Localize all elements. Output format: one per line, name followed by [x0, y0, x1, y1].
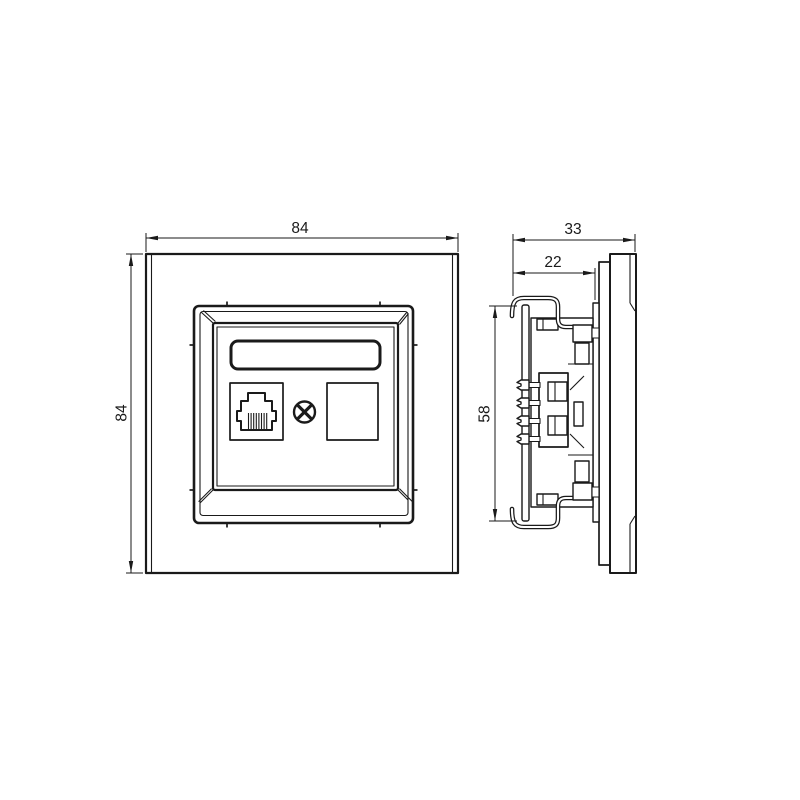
- dim-front-height: 84: [114, 254, 144, 573]
- terminal-screw-top: [548, 382, 567, 401]
- arrowhead: [493, 306, 497, 318]
- dim-label: 22: [544, 254, 561, 271]
- side-latch-block-top: [573, 325, 592, 342]
- side-center-slot: [574, 402, 583, 426]
- arrowhead: [146, 236, 158, 240]
- dim-label: 84: [114, 404, 131, 422]
- arrowhead: [513, 271, 525, 275]
- side-terminal-block: [539, 373, 568, 447]
- cover-inner-face-line: [217, 327, 394, 486]
- dim-label: 33: [564, 221, 581, 238]
- dim-insert-height: 58: [477, 306, 518, 521]
- rj45-port: [230, 383, 283, 440]
- side-rail-bottom: [575, 461, 589, 482]
- side-latch-nub-top: [592, 328, 599, 338]
- side-view: [512, 254, 636, 573]
- screw-icon: [294, 402, 315, 423]
- blank-port: [327, 383, 378, 440]
- arrowhead: [446, 236, 458, 240]
- arrowhead: [129, 254, 133, 266]
- rj45-pins: [249, 413, 267, 429]
- drawing-svg: 84 84 58 33 22: [0, 0, 800, 800]
- dim-label: 84: [291, 220, 309, 237]
- side-cover-slab: [599, 262, 610, 565]
- side-frame-edge-profile: [630, 254, 635, 573]
- terminal-screw-bottom: [548, 416, 567, 435]
- arrowhead: [583, 271, 595, 275]
- front-view: [146, 254, 458, 573]
- dim-insert-depth: 22: [513, 254, 595, 300]
- arrowhead: [623, 238, 635, 242]
- technical-drawing: 84 84 58 33 22: [0, 0, 800, 800]
- arrowhead: [129, 561, 133, 573]
- dim-depth-total: 33: [513, 221, 635, 296]
- side-frame-slab: [610, 254, 636, 573]
- arrowhead: [493, 509, 497, 521]
- dim-label: 58: [477, 405, 494, 422]
- arrowhead: [513, 238, 525, 242]
- side-rail-top: [575, 343, 589, 364]
- side-latch-nub-bottom: [592, 487, 599, 497]
- side-latch-block-bottom: [573, 483, 592, 500]
- label-window: [231, 341, 380, 369]
- dim-front-width: 84: [146, 220, 458, 252]
- side-claw-bar: [522, 305, 529, 521]
